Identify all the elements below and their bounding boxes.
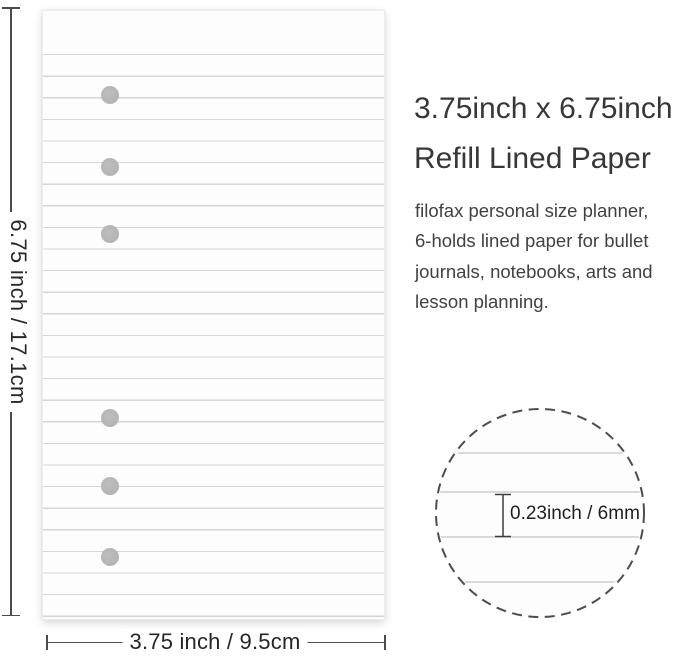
- product-title-name: Refill Lined Paper: [414, 142, 651, 176]
- binder-hole: [101, 225, 119, 243]
- product-title-size: 3.75inch x 6.75inch: [414, 92, 673, 126]
- width-dimension-left-cap: [46, 635, 48, 650]
- width-dimension-right-cap: [384, 635, 386, 650]
- width-dimension-label: 3.75 inch / 9.5cm: [123, 629, 308, 655]
- binder-hole: [101, 158, 119, 176]
- binder-hole: [101, 548, 119, 566]
- binder-hole: [101, 86, 119, 104]
- binder-hole: [101, 409, 119, 427]
- product-infographic: 6.75 inch / 17.1cm 3.75 inch / 9.5cm 3.7…: [0, 0, 679, 656]
- height-dimension-label: 6.75 inch / 17.1cm: [5, 219, 31, 404]
- ruled-lines: [43, 54, 384, 619]
- product-description: filofax personal size planner, 6-holds l…: [415, 196, 673, 318]
- height-dimension-line-upper: [10, 7, 11, 212]
- height-dimension-top-cap: [2, 7, 20, 9]
- height-dimension-line-lower: [10, 412, 11, 616]
- lined-paper-sheet: [42, 10, 385, 620]
- line-spacing-label: 0.23inch / 6mm: [510, 503, 640, 525]
- height-dimension-bottom-cap: [2, 615, 20, 617]
- line-spacing-detail: 0.23inch / 6mm: [434, 407, 646, 619]
- binder-hole: [101, 477, 119, 495]
